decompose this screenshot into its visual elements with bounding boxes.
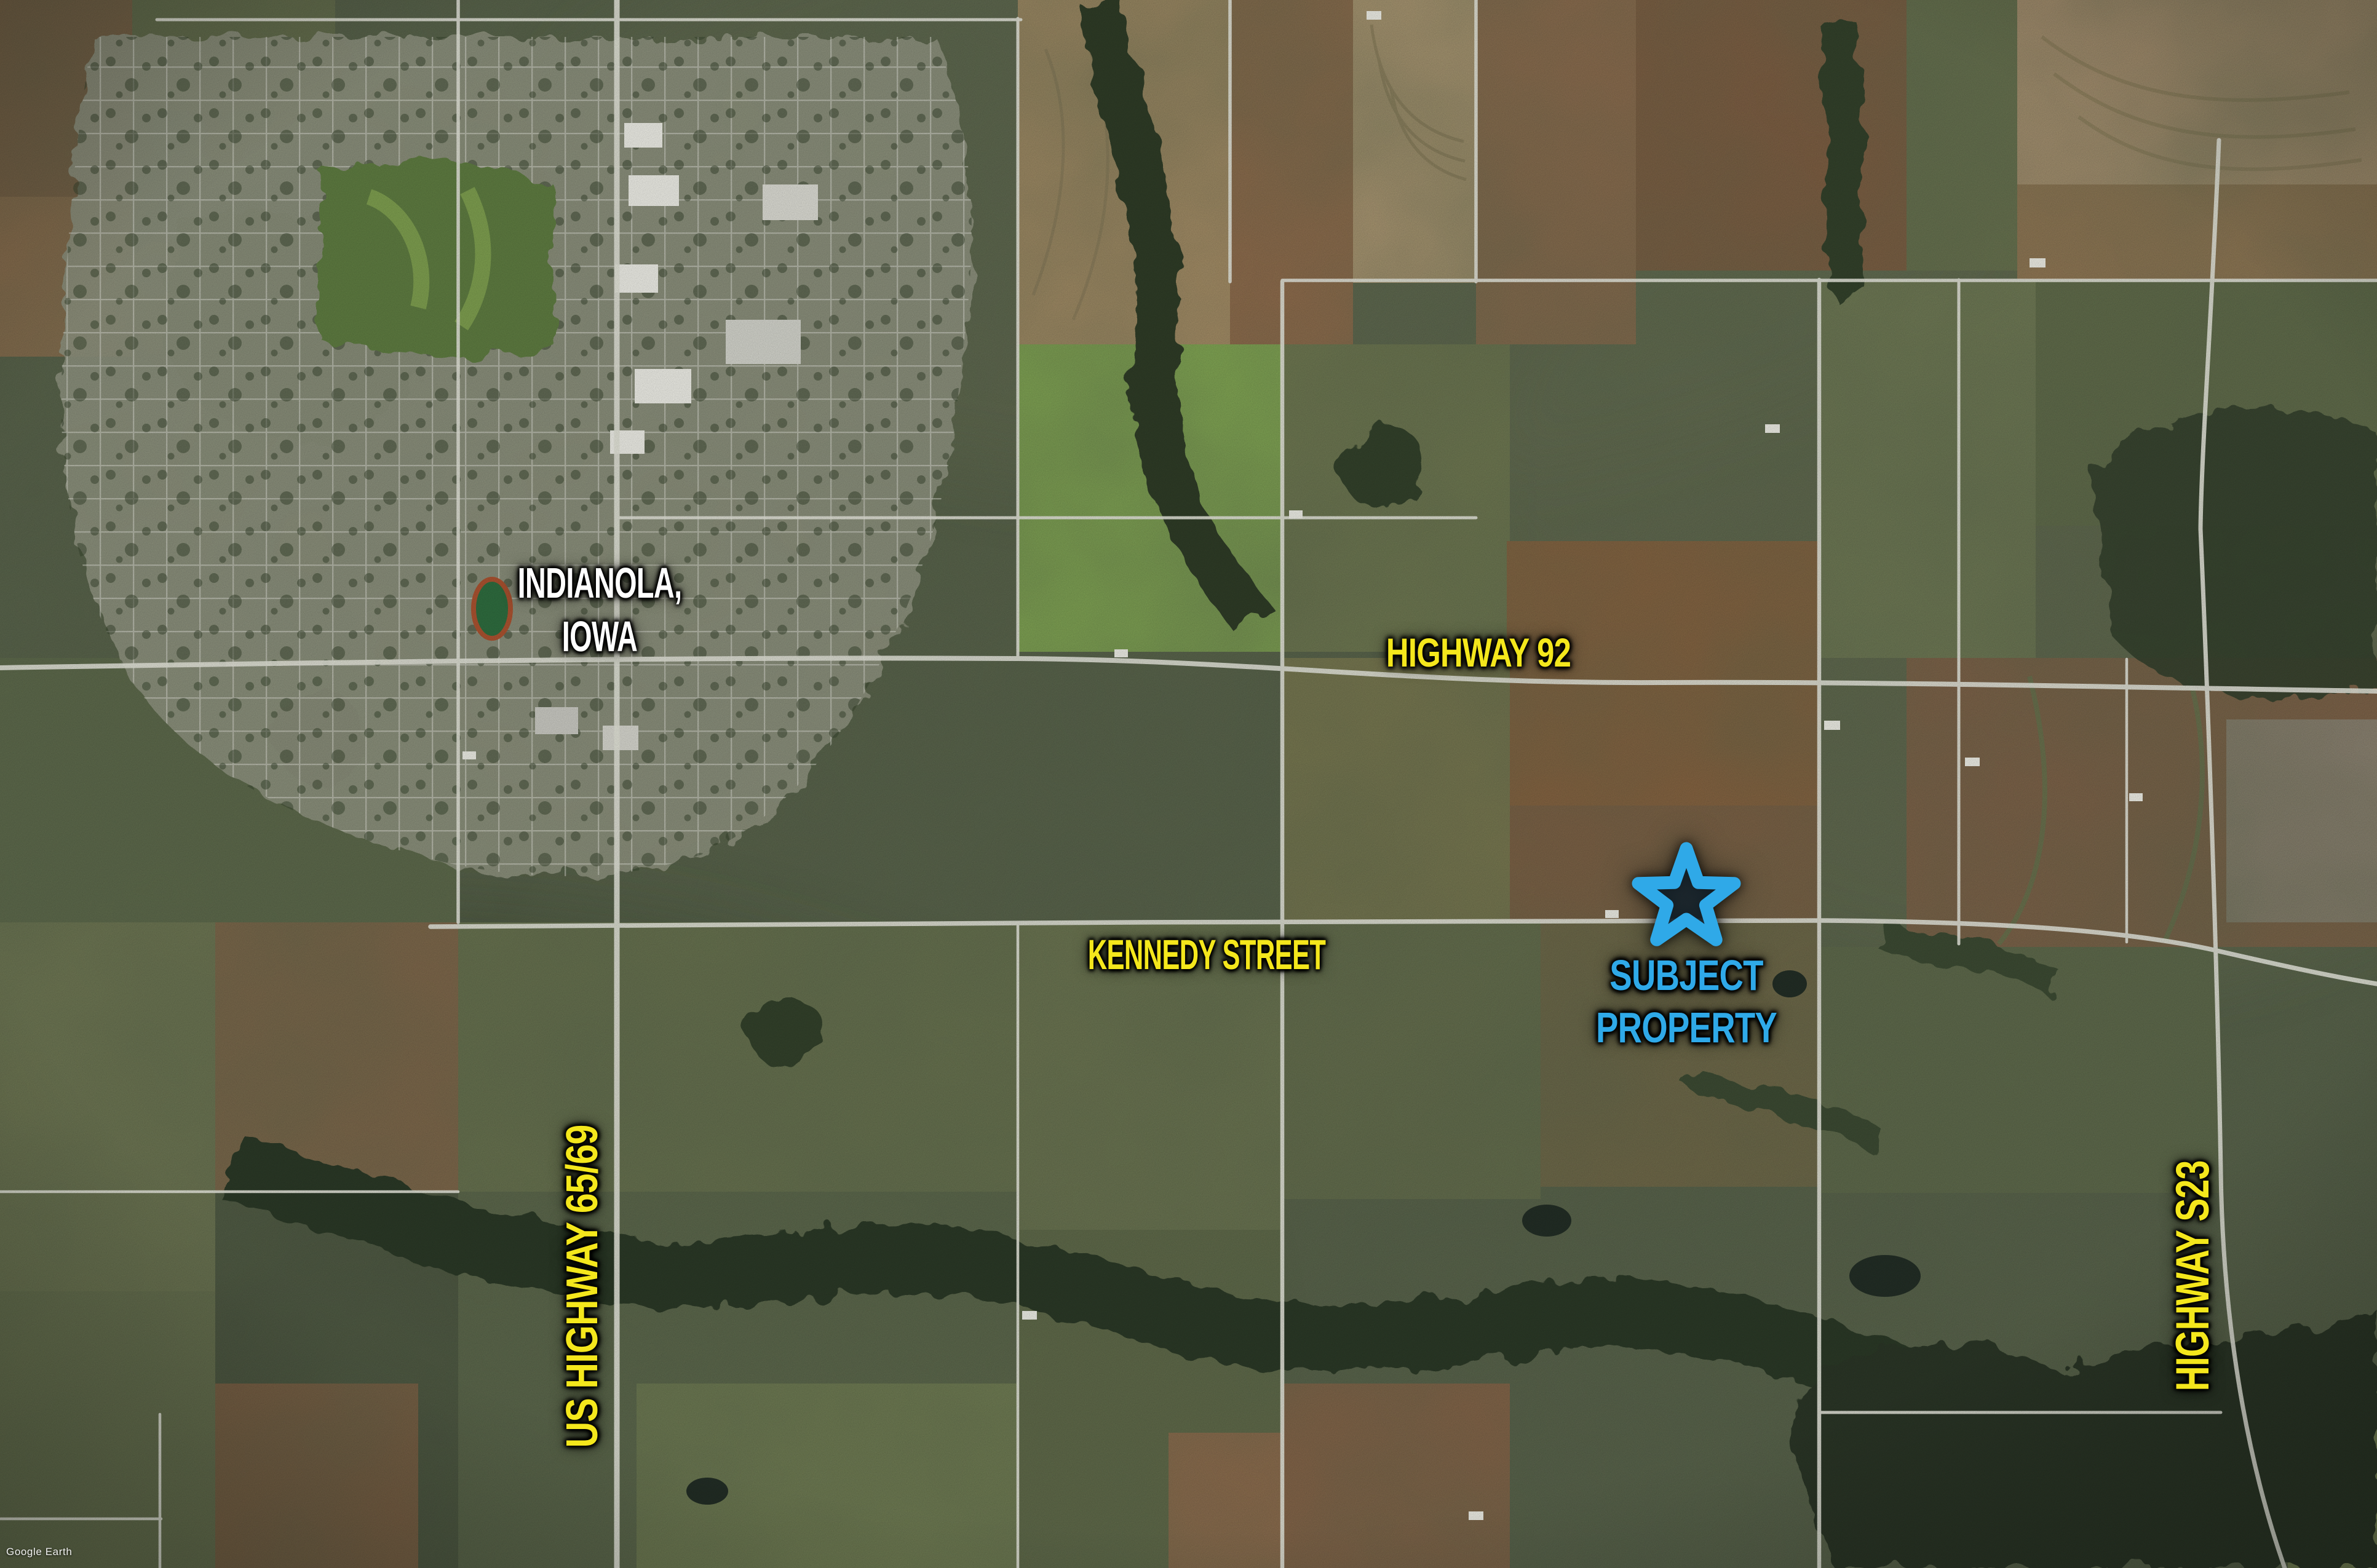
us-highway-65-69-label: US HIGHWAY 65/69 xyxy=(560,1125,605,1447)
aerial-location-map: INDIANOLA, IOWA HIGHWAY 92 KENNEDY STREE… xyxy=(0,0,2377,1568)
satellite-imagery xyxy=(0,0,2377,1568)
subject-property-label: SUBJECT PROPERTY xyxy=(1596,949,1777,1054)
subject-property-label-line2: PROPERTY xyxy=(1596,1002,1777,1054)
highway-92-label: HIGHWAY 92 xyxy=(1386,632,1571,673)
subject-property-label-line1: SUBJECT xyxy=(1596,949,1777,1002)
kennedy-street-label: KENNEDY STREET xyxy=(1088,933,1326,976)
highway-s23-label: HIGHWAY S23 xyxy=(2170,1160,2216,1391)
city-label-line1: INDIANOLA, xyxy=(518,556,682,610)
city-label-line2: IOWA xyxy=(518,610,682,663)
city-label: INDIANOLA, IOWA xyxy=(518,556,682,663)
google-earth-watermark: Google Earth xyxy=(6,1546,72,1558)
